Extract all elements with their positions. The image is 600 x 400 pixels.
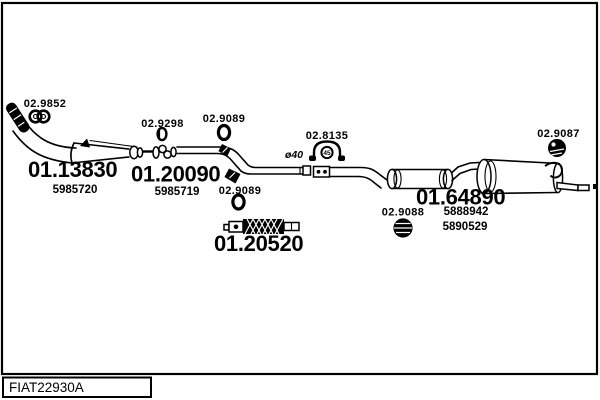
exhaust-diagram: 45 02.9852 02.9298 02.9089 02.9089 02.81… bbox=[0, 0, 600, 400]
pipe-end-cap bbox=[303, 166, 311, 175]
footer-code: FIAT22930A bbox=[9, 380, 84, 395]
ref-mount-rear: 02.9087 bbox=[537, 128, 580, 140]
part-number-front-pipe: 01.13830 bbox=[28, 157, 117, 182]
oem-center-pipe: 5985719 bbox=[155, 186, 200, 198]
oem-front-pipe: 5985720 bbox=[53, 184, 98, 196]
ref-seal-ring: 02.9298 bbox=[141, 118, 184, 130]
part-number-flex-pipe: 01.20520 bbox=[214, 231, 303, 256]
end-marker bbox=[593, 184, 598, 189]
ref-oring-front: 02.9089 bbox=[203, 113, 246, 125]
footer-box: FIAT22930A bbox=[3, 378, 151, 398]
part-number-center-pipe: 01.20090 bbox=[131, 162, 220, 187]
oem-rear-silencer-2: 5890529 bbox=[443, 221, 488, 233]
mount-center-icon bbox=[393, 218, 412, 237]
connector-sleeve bbox=[314, 167, 330, 178]
ref-oring-mid: 02.9089 bbox=[219, 185, 262, 197]
ref-gasket: 02.9852 bbox=[24, 98, 67, 110]
oem-rear-silencer-1: 5888942 bbox=[444, 206, 489, 218]
mount-rear-icon bbox=[548, 139, 566, 157]
ref-clamp: 02.8135 bbox=[306, 130, 349, 142]
catalog-page: 45 02.9852 02.9298 02.9089 02.9089 02.81… bbox=[0, 0, 600, 400]
clamp-stamp: 45 bbox=[323, 150, 331, 157]
diameter-annotation: ø40 bbox=[285, 149, 303, 161]
